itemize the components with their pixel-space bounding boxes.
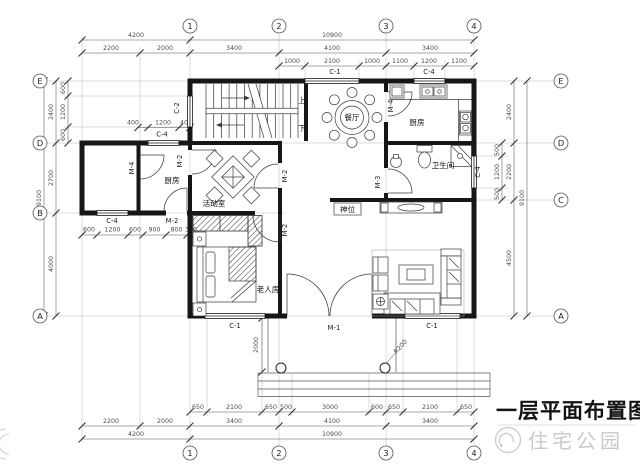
window-c4-annex-bottom <box>97 211 128 216</box>
title-block: 一层平面布置图 住宅公园 <box>0 398 640 459</box>
room-label-elder-bedroom: 老人房 <box>257 284 280 294</box>
label-m3: M-3 <box>374 176 382 189</box>
dim-text: 400 <box>127 120 139 127</box>
dim-text: 2100 <box>422 404 438 411</box>
dim-text: 500 <box>494 188 501 200</box>
dim-text: 10900 <box>322 32 342 39</box>
axis-label: D <box>558 138 564 148</box>
stove-icon <box>460 111 472 135</box>
column-radius-label: R200 <box>393 339 409 356</box>
window-c4-kitchen <box>414 79 445 84</box>
coffee-table <box>399 265 433 284</box>
label-m1: M-1 <box>328 324 341 332</box>
axis-label: 2 <box>276 21 281 31</box>
axis-label: 2 <box>276 448 281 458</box>
dim-text: 3400 <box>422 418 438 425</box>
dim-text: 4000 <box>48 256 55 272</box>
dim-text: 4200 <box>128 431 144 438</box>
washbasin-icon <box>391 155 402 168</box>
label-m2: M-2 <box>166 217 179 225</box>
dim-text: 500 <box>280 404 292 411</box>
dim-text: 1200 <box>155 120 171 127</box>
axis-label: 4 <box>471 21 476 31</box>
label-c4: C-4 <box>156 131 168 139</box>
dim-text: 10900 <box>322 431 342 438</box>
dim-text: 2200 <box>506 164 513 180</box>
dim-text: 650 <box>192 404 204 411</box>
dim-text: 1000 <box>364 58 380 65</box>
dim-text: 4200 <box>128 32 144 39</box>
room-label-kitchen-annex: 厨房 <box>164 175 179 185</box>
label-c4: C-4 <box>474 166 482 178</box>
dim-text: 2200 <box>103 418 119 425</box>
sofa-set <box>372 249 464 316</box>
dim-text: 2400 <box>506 104 513 120</box>
dim-text: 2200 <box>103 45 119 52</box>
porch-steps <box>258 319 490 397</box>
dim-text: 2100 <box>324 58 340 65</box>
room-label-activity: 活动室 <box>203 198 226 208</box>
dim-text: 9100 <box>36 190 43 206</box>
dim-text: 4100 <box>324 418 340 425</box>
axis-label: B <box>37 208 43 218</box>
dim-text: 2700 <box>48 170 55 186</box>
axis-label: A <box>37 311 43 321</box>
column-icon <box>276 363 286 373</box>
label-m2: M-2 <box>176 155 184 168</box>
dim-text: 500 <box>494 144 501 156</box>
axis-label: 4 <box>471 448 476 458</box>
dim-text: 1200 <box>494 164 501 180</box>
dim-text: 1200 <box>421 58 437 65</box>
dim-text: 2000 <box>157 418 173 425</box>
dim-text: 600 <box>60 129 67 141</box>
dim-text: 800 <box>170 227 182 234</box>
dim-text: 2100 <box>226 404 242 411</box>
bed <box>197 247 256 302</box>
dim-text: 2000 <box>157 45 173 52</box>
axis-label: C <box>558 195 564 205</box>
dim-text: 4500 <box>506 250 513 266</box>
axis-bubble-labels: 1 2 3 4 1 2 3 4 E D B A E D C A <box>37 21 564 458</box>
toilet-icon <box>417 146 432 169</box>
label-m4: M-4 <box>387 100 395 113</box>
label-m2: M-2 <box>281 224 289 237</box>
door-m4-annex <box>140 155 164 179</box>
stair-down-label: 下 <box>298 124 306 133</box>
drawing-title: 一层平面布置图 <box>496 398 640 423</box>
watermark-brand: 住宅公园 <box>528 429 624 453</box>
room-label-shrine: 神位 <box>340 204 356 214</box>
window-c1-dining <box>305 79 359 84</box>
label-c1: C-1 <box>426 322 438 330</box>
axis-label: D <box>37 138 43 148</box>
dim-text: 600 <box>129 227 141 234</box>
door-m2-annex-back <box>164 188 187 211</box>
axis-grid <box>47 33 554 446</box>
room-label-dining: 餐厅 <box>344 113 360 122</box>
axis-label: 3 <box>383 448 388 458</box>
dim-text: 3000 <box>322 404 338 411</box>
floor-plan-page: 4200 10900 2200 2000 3400 4100 3400 1000… <box>0 0 640 467</box>
window-c1-bedroom <box>205 314 265 319</box>
stair-up-label: 上 <box>298 96 306 105</box>
stairs <box>206 84 298 138</box>
window-c2-stair <box>188 96 193 127</box>
dim-text: 4100 <box>324 45 340 52</box>
axis-label: 3 <box>383 21 388 31</box>
dim-text: 3400 <box>226 45 242 52</box>
column-icon <box>380 363 390 373</box>
dim-text: 9100 <box>519 190 526 206</box>
mahjong-table <box>188 132 279 223</box>
label-m2: M-2 <box>281 170 289 183</box>
fridge-icon <box>390 85 404 98</box>
axis-label: 1 <box>187 21 192 31</box>
room-label-kitchen: 厨房 <box>409 117 424 127</box>
axis-label: A <box>558 311 564 321</box>
dim-text: 650 <box>388 404 400 411</box>
altar-table <box>380 202 442 213</box>
porch-depth-dim: 2000 <box>253 337 260 353</box>
dim-text: 600 <box>371 404 383 411</box>
dim-text: 600 <box>83 227 95 234</box>
room-label-bathroom: 卫生间 <box>432 160 455 170</box>
dim-text: 2400 <box>48 104 55 120</box>
watermark-edge-icon <box>0 429 9 459</box>
dim-text: 1000 <box>284 58 300 65</box>
dim-text: 650 <box>265 404 277 411</box>
axis-label: E <box>37 76 42 86</box>
door-m2-hall-activity <box>254 164 278 188</box>
door-m1-entrance <box>287 274 372 316</box>
dim-text: 1100 <box>451 58 467 65</box>
label-m4: M-4 <box>128 162 136 175</box>
dim-text: 1200 <box>104 227 120 234</box>
dim-text: 600 <box>60 82 67 94</box>
axis-label: E <box>558 76 563 86</box>
dim-text: 3400 <box>422 45 438 52</box>
floor-plan-drawing: 4200 10900 2200 2000 3400 4100 3400 1000… <box>0 0 640 467</box>
corner-table <box>373 294 388 309</box>
dim-text: 900 <box>148 227 160 234</box>
watermark-logo-icon <box>496 428 521 453</box>
dim-text: 1100 <box>392 58 408 65</box>
kitchen-counter <box>389 85 472 141</box>
axis-bubbles <box>33 19 568 460</box>
label-c4: C-4 <box>106 217 118 225</box>
door-m3-bathroom <box>388 169 412 193</box>
dim-text: 1200 <box>60 104 67 120</box>
porch-columns <box>276 363 390 373</box>
label-c2: C-2 <box>173 102 181 114</box>
label-c1: C-1 <box>329 68 341 76</box>
label-c4: C-4 <box>423 68 435 76</box>
sink-icon <box>420 85 447 98</box>
dim-text: 3400 <box>226 418 242 425</box>
axis-label: 1 <box>187 448 192 458</box>
label-c1: C-1 <box>229 322 241 330</box>
window-c4-annex-top <box>148 141 179 146</box>
dim-text: 650 <box>460 404 472 411</box>
